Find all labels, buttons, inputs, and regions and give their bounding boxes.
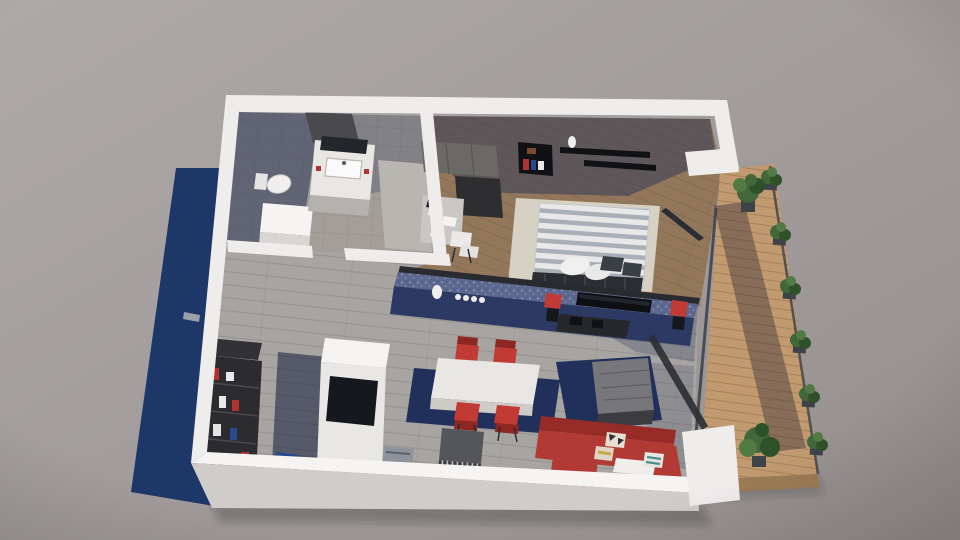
floorplan-render xyxy=(0,0,960,540)
vignette xyxy=(0,0,960,540)
floorplan-canvas xyxy=(0,0,960,540)
